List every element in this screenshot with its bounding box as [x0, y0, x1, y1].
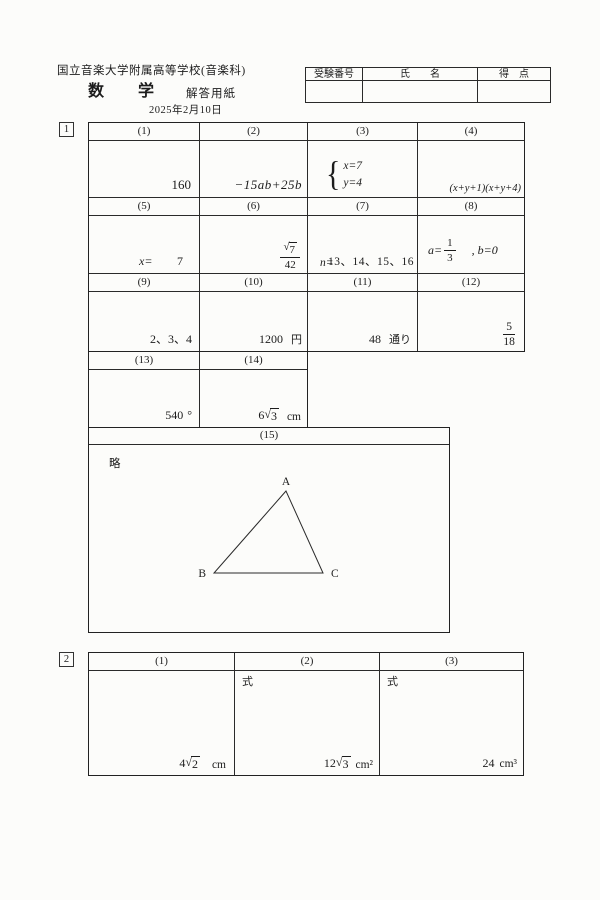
- s1-answer-3: { x=7 y=4: [326, 158, 362, 193]
- section2-number: 2: [64, 654, 69, 665]
- s1-cell-2-label: (2): [200, 123, 307, 141]
- s2-cell-3: (3) 式 24cm³: [380, 653, 523, 775]
- s1-cell-15: (15) 略 A B C: [88, 427, 450, 633]
- s1-cell-3-label: (3): [308, 123, 417, 141]
- s1-cell-13-label: (13): [89, 352, 199, 370]
- section1-number-box: 1: [59, 122, 74, 137]
- section2-grid: (1) 4√2cm (2) 式 12√3cm² (3) 式 24cm³: [88, 652, 524, 776]
- s2-cell-1: (1) 4√2cm: [89, 653, 235, 775]
- s2-cell-2-formula-label: 式: [242, 673, 253, 689]
- s1-answer-6-den: 42: [285, 258, 296, 271]
- triangle-sketch: A B C: [89, 445, 448, 632]
- exam-number-field: [306, 81, 363, 102]
- s1-cell-12-label: (12): [418, 274, 524, 292]
- s1-answer-11: 48通り: [369, 331, 411, 347]
- s1-cell-11: (11) 48通り: [308, 274, 418, 351]
- s1-answer-9: 2、3、4: [150, 330, 192, 347]
- name-field: [363, 81, 478, 102]
- s1-answer-12: 5 18: [503, 321, 515, 349]
- s1-answer-8-num: 1: [444, 237, 456, 251]
- s1-answer-10: 1200円: [259, 331, 302, 347]
- s1-answer-8-a-prefix: a=: [428, 243, 442, 258]
- s1-answer-1: 160: [172, 177, 192, 193]
- s1-cell-11-label: (11): [308, 274, 417, 292]
- s1-answer-15-note: 略: [109, 455, 121, 471]
- s1-answer-12-den: 18: [503, 335, 515, 349]
- s1-cell-4-label: (4): [418, 123, 524, 141]
- s1-cell-10-label: (10): [200, 274, 307, 292]
- s2-answer-3-value: 24: [483, 756, 495, 770]
- s1-cell-6-label: (6): [200, 198, 307, 216]
- triangle-vertex-b-label: B: [198, 568, 206, 580]
- triangle-shape: [214, 491, 323, 573]
- score-header: 得 点: [478, 68, 550, 81]
- name-header: 氏 名: [363, 68, 478, 81]
- section1-number: 1: [64, 124, 69, 135]
- s1-cell-10: (10) 1200円: [200, 274, 308, 351]
- s1-cell-13: (13) 540°: [89, 352, 200, 427]
- exam-date: 2025年2月10日: [149, 102, 222, 117]
- s1-answer-13: 540°: [165, 408, 192, 423]
- answer-sheet-page: 国立音楽大学附属高等学校(音楽科) 数学 解答用紙 2025年2月10日 受験番…: [0, 0, 600, 900]
- s1-cell-14: (14) 6√3cm: [200, 352, 307, 427]
- score-field: [478, 81, 550, 102]
- s1-answer-5-prefix: x=: [139, 254, 152, 269]
- s1-cell-1: (1) 160: [89, 123, 200, 198]
- s1-answer-8-den: 3: [447, 251, 453, 264]
- s2-answer-1: 4√2cm: [179, 756, 226, 771]
- s1-answer-13-unit: °: [187, 408, 192, 422]
- s1-answer-5-value: 7: [177, 254, 183, 269]
- examinee-info-table: 受験番号 氏 名 得 点: [305, 67, 551, 103]
- section2-number-box: 2: [59, 652, 74, 667]
- s1-answer-8: a= 1 3 , b=0: [428, 237, 498, 264]
- s1-cell-3: (3) { x=7 y=4: [308, 123, 418, 198]
- s2-answer-2: 12√3cm²: [324, 756, 373, 771]
- s1-cell-7: (7) n= 13、14、15、16: [308, 198, 418, 274]
- sheet-type-label: 解答用紙: [186, 85, 236, 101]
- triangle-vertex-c-label: C: [331, 568, 339, 580]
- s2-cell-1-label: (1): [89, 653, 234, 671]
- s1-answer-6-radicand: 7: [289, 242, 298, 256]
- s1-answer-8-b: , b=0: [472, 243, 498, 258]
- s1-answer-12-num: 5: [503, 321, 515, 336]
- s1-answer-14-unit: cm: [287, 411, 301, 423]
- s1-cell-2: (2) −15ab+25b: [200, 123, 308, 198]
- s1-cell-7-label: (7): [308, 198, 417, 216]
- s1-cell-6: √7 42 (6): [200, 198, 308, 274]
- s1-answer-4: (x+y+1)(x+y+4): [450, 183, 521, 194]
- s2-answer-2-radicand: 3: [342, 756, 351, 771]
- s1-answer-11-unit: 通り: [389, 334, 411, 346]
- s1-answer-6: √7 42: [280, 241, 300, 271]
- s1-cell-5-label: (5): [89, 198, 199, 216]
- s1-cell-8-label: (8): [418, 198, 524, 216]
- school-name: 国立音楽大学附属高等学校(音楽科): [57, 62, 246, 78]
- s1-cell-9-label: (9): [89, 274, 199, 292]
- s2-cell-3-label: (3): [380, 653, 523, 671]
- s1-answer-7-value: 13、14、15、16: [328, 253, 414, 269]
- s1-cell-4: (4) (x+y+1)(x+y+4): [418, 123, 524, 198]
- section1-grid: (1) 160 (2) −15ab+25b (3) { x=7 y=4: [88, 122, 525, 352]
- s1-cell-8: (8) a= 1 3 , b=0: [418, 198, 524, 274]
- s1-cell-12: (12) 5 18: [418, 274, 524, 351]
- system-brace: {: [326, 158, 340, 193]
- s1-cell-9: (9) 2、3、4: [89, 274, 200, 351]
- s2-answer-2-unit: cm²: [356, 759, 374, 771]
- s1-cell-15-label: (15): [89, 428, 449, 445]
- s1-cell-14-label: (14): [200, 352, 307, 370]
- s2-cell-3-formula-label: 式: [387, 673, 398, 689]
- s2-answer-1-radicand: 2: [191, 756, 200, 771]
- s1-answer-14: 6√3cm: [258, 408, 301, 423]
- s1-answer-5: x= 7: [139, 254, 183, 269]
- s1-answer-13-value: 540: [165, 408, 183, 422]
- exam-number-header: 受験番号: [306, 68, 363, 81]
- s1-answer-10-value: 1200: [259, 332, 283, 346]
- s1-answer-10-unit: 円: [291, 334, 302, 346]
- s1-cell-1-label: (1): [89, 123, 199, 141]
- s1-answer-3-line1: x=7: [343, 158, 362, 175]
- s2-answer-3: 24cm³: [483, 756, 518, 771]
- s1-answer-14-radicand: 3: [270, 408, 279, 423]
- s1-answer-3-line2: y=4: [343, 175, 362, 192]
- s2-answer-3-unit: cm³: [500, 758, 518, 770]
- s2-cell-2-label: (2): [235, 653, 379, 671]
- triangle-vertex-a-label: A: [282, 476, 291, 488]
- s2-cell-2: (2) 式 12√3cm²: [235, 653, 380, 775]
- s1-cell-5: (5) x= 7: [89, 198, 200, 274]
- s2-answer-2-coef: 12: [324, 756, 336, 771]
- s1-answer-11-value: 48: [369, 332, 381, 346]
- section1-grid-row4: (13) 540° (14) 6√3cm: [88, 351, 308, 428]
- s1-answer-2: −15ab+25b: [234, 177, 302, 193]
- s2-answer-1-unit: cm: [212, 759, 226, 771]
- subject-title: 数学: [88, 77, 188, 101]
